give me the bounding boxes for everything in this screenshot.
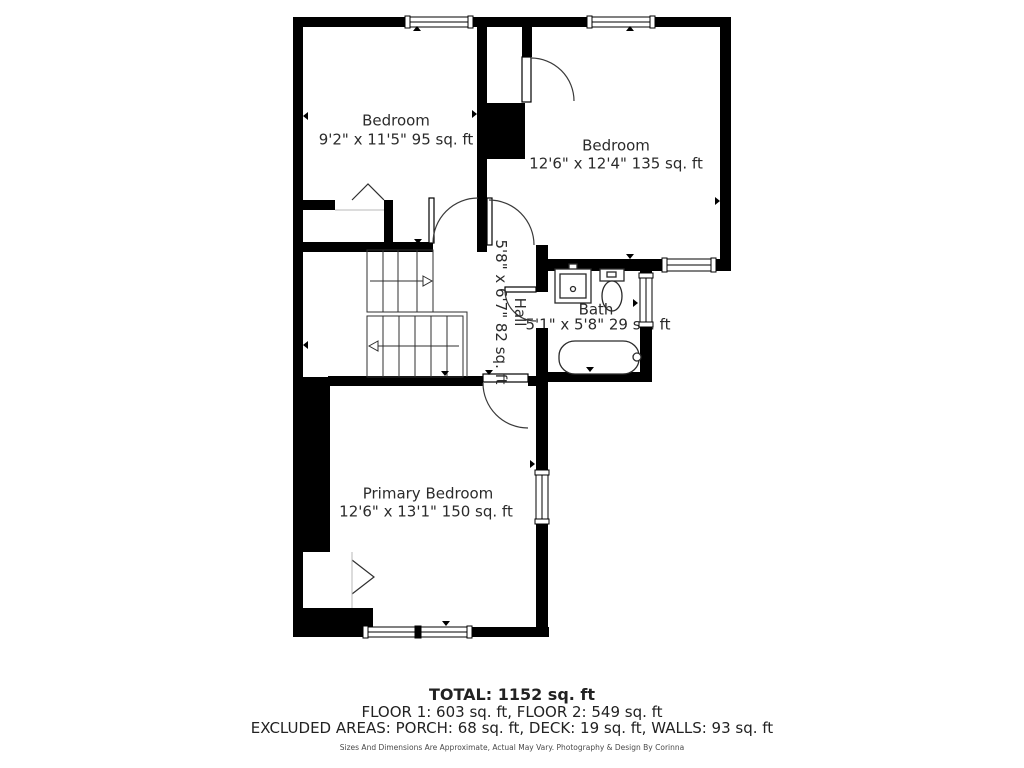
total-area-text: TOTAL: 1152 sq. ft — [0, 685, 1024, 704]
window-bath-right — [639, 273, 653, 327]
bedroom1-dims-label: 9'2" x 11'5" 95 sq. ft — [319, 131, 474, 150]
bedroom1-name-label: Bedroom — [362, 112, 430, 131]
window-bedroom2-top — [587, 16, 655, 28]
door-hall-to-bedroom2-alcove — [487, 198, 534, 245]
bedroom2-name-label: Bedroom — [582, 137, 650, 156]
bifold-bedroom1-closet — [352, 184, 384, 200]
wall-left-beside-closet — [293, 552, 303, 608]
wall-left-band — [293, 377, 330, 552]
door-hall-to-bedroom1 — [429, 198, 478, 243]
wall-bottom-left-block — [293, 608, 373, 627]
floor-plan-page: 5'1" x 5'8" 29 sq. ft — [0, 0, 1024, 768]
window-bedroom2-bottom — [662, 258, 716, 272]
stairs — [367, 250, 467, 377]
wall-right-outer — [720, 17, 731, 271]
wall-hall-right-lower — [536, 328, 548, 376]
wall-closet-right — [522, 27, 532, 57]
hall-dims-label: 5'8" x 6'7" 82 sq. ft — [491, 239, 510, 384]
wall-left-upper — [293, 17, 303, 377]
stairs-landing-edge — [367, 312, 467, 377]
window-primary-right — [535, 470, 549, 524]
bath-name-label: Bath — [579, 301, 614, 320]
bedroom2-dims-label: 12'6" x 12'4" 135 sq. ft — [529, 155, 703, 174]
wall-bath-top — [536, 259, 652, 271]
sink-icon — [555, 264, 591, 303]
disclaimer-text: Sizes And Dimensions Are Approximate, Ac… — [0, 743, 1024, 752]
wall-bedroom1-closet-stub — [302, 200, 335, 210]
bathtub-icon — [559, 341, 641, 374]
wall-chimney-block — [477, 103, 525, 159]
primary-bedroom-name-label: Primary Bedroom — [363, 485, 494, 504]
hall-name-label: Hall — [510, 239, 529, 384]
wall-bedroom1-closet-post — [384, 200, 393, 242]
stairs-up-arrow — [370, 276, 432, 286]
excluded-areas-text: EXCLUDED AREAS: PORCH: 68 sq. ft, DECK: … — [0, 719, 1024, 737]
window-primary-bottom-double — [363, 626, 472, 638]
window-bedroom1-top — [405, 16, 473, 28]
bifold-primary-closet — [352, 560, 374, 594]
door-bedroom2-closet — [522, 57, 574, 102]
hall-label: Hall 5'8" x 6'7" 82 sq. ft — [491, 239, 529, 384]
wall-top — [293, 17, 731, 27]
primary-bedroom-dims-label: 12'6" x 13'1" 150 sq. ft — [339, 503, 513, 522]
